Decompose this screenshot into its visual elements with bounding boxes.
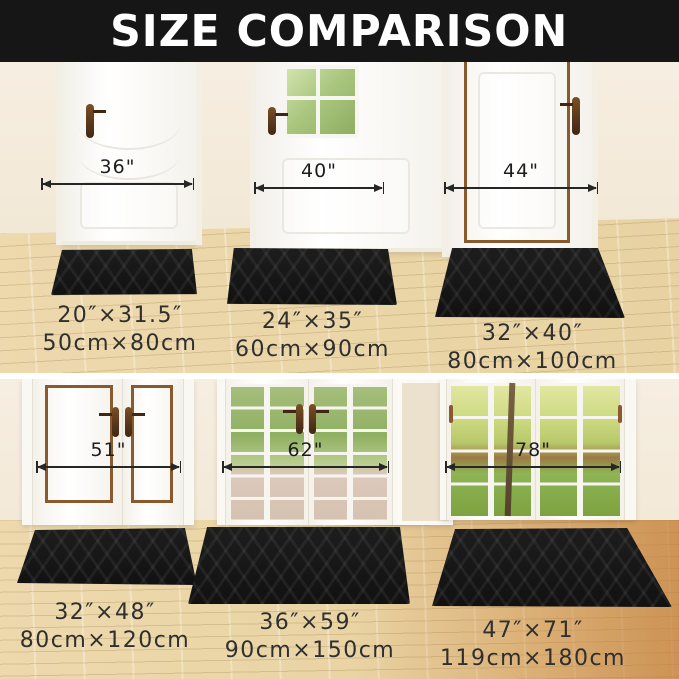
door-panel xyxy=(478,72,556,229)
door-handle xyxy=(618,405,622,423)
doormat-small xyxy=(51,249,197,295)
door-handle xyxy=(309,404,316,434)
mat-size-cm: 119cm×180cm xyxy=(418,645,648,673)
page-title: SIZE COMPARISON xyxy=(110,6,568,57)
top-comparison-row: 36" 40" 44" xyxy=(0,62,679,373)
door-handle xyxy=(296,404,303,434)
width-dimension-51in: 51" xyxy=(37,439,180,473)
dimension-label: 78" xyxy=(446,439,620,461)
width-dimension-78in: 78" xyxy=(446,439,620,473)
width-dimension-40in: 40" xyxy=(255,160,383,194)
mat-size-label: 47″×71″ 119cm×180cm xyxy=(418,617,648,673)
width-dimension-36in: 36" xyxy=(42,156,193,190)
dimension-line xyxy=(446,461,620,473)
door-window xyxy=(283,65,359,138)
mat-size-cm: 90cm×150cm xyxy=(200,637,420,665)
dimension-bar xyxy=(256,187,382,189)
dimension-bar xyxy=(447,466,619,468)
dimension-bar xyxy=(43,183,192,185)
mat-size-cm: 60cm×90cm xyxy=(215,336,410,364)
mat-size-inches: 20″×31.5″ xyxy=(20,302,220,330)
header-bar: SIZE COMPARISON xyxy=(0,0,679,62)
dimension-label: 62" xyxy=(223,439,388,461)
arrow-left-icon xyxy=(223,463,232,471)
dimension-tick-right xyxy=(193,178,195,190)
dimension-line xyxy=(255,182,383,194)
mat-size-cm: 50cm×80cm xyxy=(20,330,220,358)
mat-size-cm: 80cm×100cm xyxy=(430,348,635,373)
mat-size-inches: 24″×35″ xyxy=(215,308,410,336)
dimension-line xyxy=(223,461,388,473)
door-36in xyxy=(62,62,196,245)
arrow-left-icon xyxy=(255,184,264,192)
door-handle xyxy=(449,405,453,423)
doormat-xxl xyxy=(188,527,410,604)
dimension-tick-right xyxy=(597,182,599,194)
door-handle xyxy=(268,107,276,135)
mat-size-label: 24″×35″ 60cm×90cm xyxy=(215,308,410,364)
mat-size-inches: 32″×48″ xyxy=(5,599,205,627)
dimension-bar xyxy=(38,466,179,468)
size-comparison-infographic: SIZE COMPARISON 36" xyxy=(0,0,679,679)
dimension-tick-right xyxy=(180,461,182,473)
door-handle xyxy=(572,97,580,135)
mat-size-inches: 32″×40″ xyxy=(430,320,635,348)
mat-size-label: 36″×59″ 90cm×150cm xyxy=(200,609,420,665)
doormat-medium xyxy=(227,248,397,305)
dimension-label: 44" xyxy=(445,160,597,182)
arrow-left-icon xyxy=(446,463,455,471)
door-40in xyxy=(256,62,444,252)
arrow-left-icon xyxy=(42,180,51,188)
bottom-comparison-row: 51" 62" 78" xyxy=(0,379,679,679)
mat-size-inches: 47″×71″ xyxy=(418,617,648,645)
mat-size-label: 32″×48″ 80cm×120cm xyxy=(5,599,205,655)
mat-size-label: 20″×31.5″ 50cm×80cm xyxy=(20,302,220,358)
dimension-tick-right xyxy=(383,182,385,194)
dimension-label: 51" xyxy=(37,439,180,461)
dimension-tick-right xyxy=(388,461,390,473)
arrow-left-icon xyxy=(445,184,454,192)
dimension-line xyxy=(42,178,193,190)
mat-size-inches: 36″×59″ xyxy=(200,609,420,637)
doormat-large xyxy=(435,248,625,318)
width-dimension-44in: 44" xyxy=(445,160,597,194)
mat-size-label: 32″×40″ 80cm×100cm xyxy=(430,320,635,373)
dimension-bar xyxy=(224,466,387,468)
arrow-left-icon xyxy=(37,463,46,471)
dimension-bar xyxy=(446,187,596,189)
mat-size-cm: 80cm×120cm xyxy=(5,627,205,655)
dimension-label: 40" xyxy=(255,160,383,182)
door-handle xyxy=(112,407,119,437)
width-dimension-62in: 62" xyxy=(223,439,388,473)
door-handle xyxy=(86,104,94,138)
doormat-xl xyxy=(17,528,197,585)
dimension-line xyxy=(37,461,180,473)
dimension-line xyxy=(445,182,597,194)
dimension-label: 36" xyxy=(42,156,193,178)
dimension-tick-right xyxy=(620,461,622,473)
door-handle xyxy=(125,407,132,437)
